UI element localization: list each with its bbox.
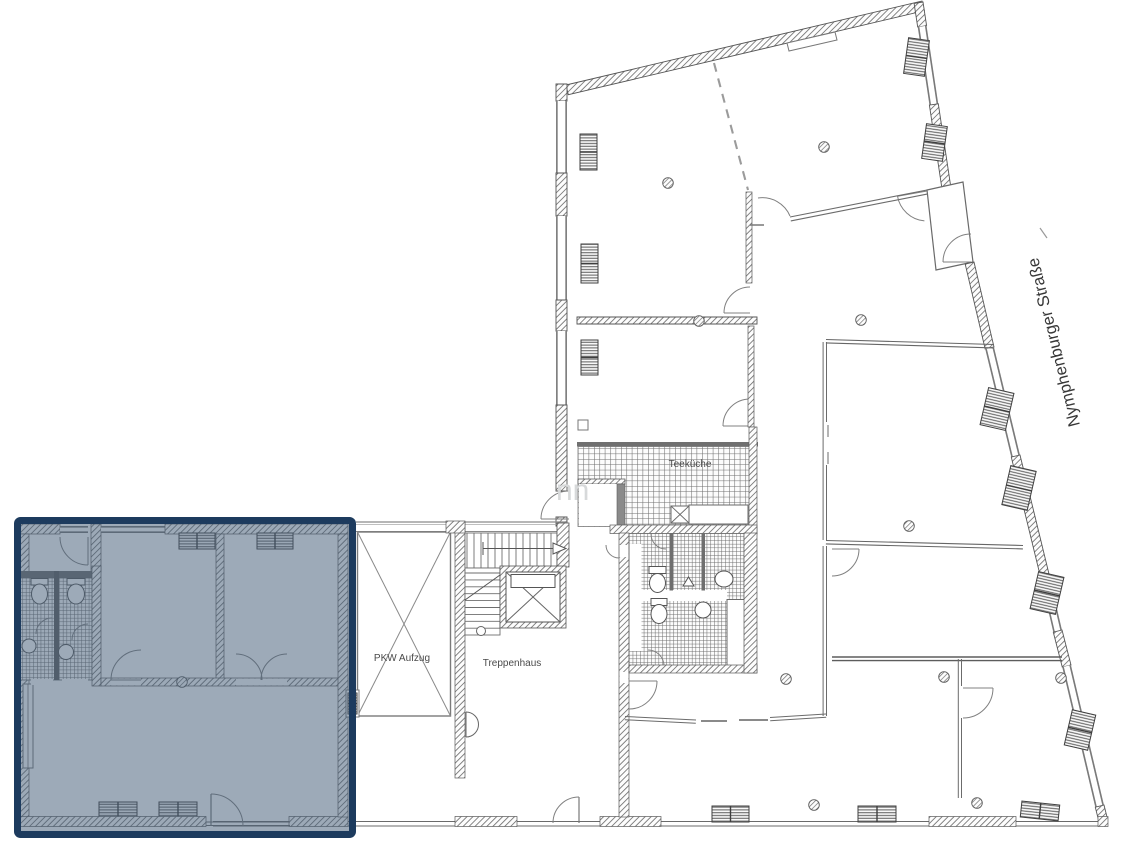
svg-text:PKW Aufzug: PKW Aufzug (374, 653, 430, 664)
svg-text:Treppenhaus: Treppenhaus (483, 658, 542, 669)
svg-text:nn: nn (556, 474, 589, 507)
svg-text:Teeküche: Teeküche (669, 459, 712, 470)
